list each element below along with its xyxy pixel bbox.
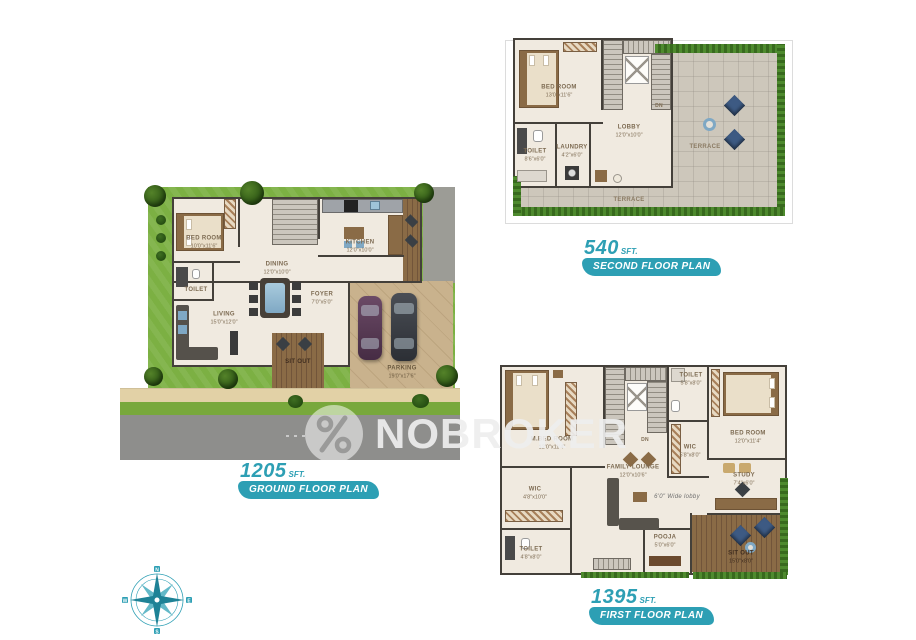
floorplan-sheet: { "brand": { "watermark": "NOBROKER" }, … <box>0 0 916 640</box>
wardrobe <box>563 42 597 52</box>
room-name: LIVING <box>210 312 237 320</box>
room-dims: 12'0"x11'4" <box>531 444 574 451</box>
room-dims: 7'0"x5'0" <box>311 299 333 306</box>
ground-floor-badge: GROUND FLOOR PLAN <box>238 481 379 499</box>
room-label-terrace-right: TERRACE <box>689 144 720 152</box>
washbasin-counter <box>595 170 607 182</box>
hedge <box>777 44 785 216</box>
bush <box>412 394 429 408</box>
room-label-pooja: POOJA 5'0"x6'0" <box>654 535 677 550</box>
room-dims: 12'0"x11'4" <box>730 438 765 445</box>
room-dims: 4'2"x6'0" <box>556 152 587 159</box>
room-dims: 5'0"x6'0" <box>654 542 677 549</box>
compass-icon: N E S W <box>120 564 194 636</box>
tree <box>436 365 458 387</box>
ground-floor-area: 1205SFT. <box>240 460 305 483</box>
wardrobe <box>224 199 236 229</box>
tree <box>144 185 166 207</box>
room-dims: 13'0"x11'6" <box>541 92 576 99</box>
sofa <box>619 518 659 530</box>
room-name: DINING <box>263 262 290 270</box>
room-label-dining: DINING 12'0"x10'0" <box>263 262 290 277</box>
room-dims: 12'0"x10'0" <box>263 269 290 276</box>
room-label-bedroom: BED ROOM 12'0"x11'4" <box>730 431 765 446</box>
room-name: TERRACE <box>689 144 720 152</box>
room-name: FOYER <box>311 292 333 300</box>
room-dims: 12'0"x10'0" <box>346 247 375 254</box>
first-floor-badge: FIRST FLOOR PLAN <box>589 607 714 625</box>
room-dims: 15'0"x8'0" <box>728 558 754 565</box>
area-number: 1205 <box>240 460 287 482</box>
tree <box>240 181 264 205</box>
wc <box>671 400 680 412</box>
tall-unit <box>388 215 403 255</box>
chair <box>723 463 735 473</box>
terrace-table <box>703 118 716 131</box>
room-name: PARKING <box>387 366 416 374</box>
room-label-toilet: TOILET <box>184 287 207 295</box>
room-dims: 5'8"x8'0" <box>680 452 701 459</box>
note-text: 6'0" Wide lobby <box>654 494 700 502</box>
compass-rose: N E S W <box>120 564 194 636</box>
room-label-sitout: SIT OUT 15'0"x8'0" <box>728 551 754 566</box>
room-dims: 12'0"x10'6" <box>607 472 660 479</box>
staircase <box>605 367 625 445</box>
chair <box>739 463 751 473</box>
room-name: TERRACE <box>613 197 644 205</box>
tree <box>218 369 238 389</box>
room-name: M.BED ROOM <box>531 437 574 445</box>
room-label-lobby: LOBBY 12'0"x10'0" <box>615 125 642 140</box>
room-name: SIT OUT <box>728 551 754 559</box>
entry-steps <box>593 558 631 570</box>
ground-floor-plan: BED ROOM 10'0"x11'6" TOILET DINING 12'0"… <box>120 183 460 460</box>
room-name: WIC <box>523 487 547 495</box>
washing-machine <box>565 166 579 180</box>
area-unit: SFT. <box>640 596 657 605</box>
staircase <box>603 40 623 110</box>
room-name: FAMILY LOUNGE <box>607 465 660 473</box>
basin <box>613 174 622 183</box>
first-floor-area: 1395SFT. <box>591 586 656 609</box>
room-label-kitchen: KITCHEN 12'0"x10'0" <box>346 240 375 255</box>
center-table <box>633 492 647 502</box>
room-name: TOILET <box>519 547 542 555</box>
first-floor-plan: DN M.BED ROOM 12'0"x11'4" <box>495 360 795 588</box>
hedge <box>655 44 785 53</box>
room-dims: 15'0"x12'0" <box>210 319 237 326</box>
room-name: TOILET <box>679 373 702 381</box>
sofa <box>607 478 619 526</box>
hedge <box>693 572 787 579</box>
bush <box>288 395 303 408</box>
shower <box>517 170 547 182</box>
car-purple <box>358 296 382 360</box>
kitchen-island <box>344 227 364 239</box>
room-name: TOILET <box>523 149 546 157</box>
stairs-dn-label: DN <box>641 437 649 444</box>
second-floor-plan: DN BED ROOM 13'0"x11'6" TOILET 8'6"x6'0"… <box>505 36 795 234</box>
room-dims: 10'0"x11'6" <box>186 243 221 250</box>
second-floor-badge: SECOND FLOOR PLAN <box>582 258 721 276</box>
room-label-foyer: FOYER 7'0"x5'0" <box>311 292 333 307</box>
room-label-bedroom: BED ROOM 13'0"x11'6" <box>541 85 576 100</box>
room-name: KITCHEN <box>346 240 375 248</box>
road <box>120 415 460 460</box>
room-dims: 7'4"x6'0" <box>733 480 755 487</box>
area-unit: SFT. <box>289 470 306 479</box>
wardrobe <box>565 382 577 436</box>
room-dims: 5'8"x8'0" <box>679 380 702 387</box>
toilet-counter <box>176 267 188 287</box>
room-label-study: STUDY 7'4"x6'0" <box>733 473 755 488</box>
room-label-toilet: TOILET 8'6"x6'0" <box>523 149 546 164</box>
room-dims: 19'0"x17'6" <box>387 373 416 380</box>
tree <box>414 183 434 203</box>
room-dims: 8'6"x6'0" <box>523 156 546 163</box>
room-name: WIC <box>680 445 701 453</box>
room-label-toilet-left: TOILET 4'8"x8'0" <box>519 547 542 562</box>
stair-landing <box>627 383 647 411</box>
room-name: TOILET <box>184 287 207 295</box>
room-dims: 4'8"x10'0" <box>523 494 547 501</box>
sofa <box>176 347 218 360</box>
study-desk <box>715 498 777 510</box>
lobby-width-note: 6'0" Wide lobby <box>654 494 700 502</box>
area-number: 540 <box>584 237 619 259</box>
wardrobe <box>711 369 720 417</box>
hedge <box>513 176 521 216</box>
room-name: STUDY <box>733 473 755 481</box>
dresser <box>505 510 563 522</box>
dining-table <box>260 278 290 318</box>
room-label-laundry: LAUNDRY 4'2"x6'0" <box>556 145 587 160</box>
tree <box>144 367 163 386</box>
side-table <box>553 370 563 378</box>
staircase <box>647 381 667 433</box>
room-name: DN <box>655 103 663 110</box>
toilet-counter <box>505 536 515 560</box>
stove <box>344 200 358 212</box>
hedge <box>581 572 689 578</box>
room-name: SIT OUT <box>285 359 311 367</box>
room-name: POOJA <box>654 535 677 543</box>
area-unit: SFT. <box>621 247 638 256</box>
room-label-master-bedroom: M.BED ROOM 12'0"x11'4" <box>531 437 574 452</box>
staircase <box>651 54 671 110</box>
room-name: BED ROOM <box>730 431 765 439</box>
pooja-shelf <box>649 556 681 566</box>
room-label-sitout: SIT OUT <box>285 359 311 367</box>
room-label-living: LIVING 15'0"x12'0" <box>210 312 237 327</box>
room-name: BED ROOM <box>541 85 576 93</box>
room-label-terrace-bottom: TERRACE <box>613 197 644 205</box>
room-name: LAUNDRY <box>556 145 587 153</box>
bed <box>505 370 549 430</box>
hedge <box>513 207 785 216</box>
compass-west-label: W <box>123 599 128 605</box>
bed <box>723 372 779 416</box>
room-name: BED ROOM <box>186 236 221 244</box>
tv-unit <box>230 331 238 355</box>
stairs-dn-label: DN <box>655 103 663 110</box>
staircase <box>272 199 318 245</box>
second-floor-area: 540SFT. <box>584 237 638 260</box>
room-dims: 4'8"x8'0" <box>519 554 542 561</box>
room-label-family-lounge: FAMILY LOUNGE 12'0"x10'6" <box>607 465 660 480</box>
room-label-wic-left: WIC 4'8"x10'0" <box>523 487 547 502</box>
room-name: LOBBY <box>615 125 642 133</box>
staircase <box>625 367 667 381</box>
room-dims: 12'0"x10'0" <box>615 132 642 139</box>
kitchen-counter <box>322 199 403 213</box>
car-dark <box>391 293 417 361</box>
wc <box>192 269 200 279</box>
room-label-wic-center: WIC 5'8"x8'0" <box>680 445 701 460</box>
sink <box>370 201 380 210</box>
area-number: 1395 <box>591 586 638 608</box>
room-label-toilet-top: TOILET 5'8"x8'0" <box>679 373 702 388</box>
hedge <box>780 478 788 575</box>
wc <box>533 130 543 142</box>
room-label-parking: PARKING 19'0"x17'6" <box>387 366 416 381</box>
room-label-bedroom: BED ROOM 10'0"x11'6" <box>186 236 221 251</box>
stair-landing <box>625 56 649 84</box>
compass-north-label: N <box>155 568 159 574</box>
room-name: DN <box>641 437 649 444</box>
